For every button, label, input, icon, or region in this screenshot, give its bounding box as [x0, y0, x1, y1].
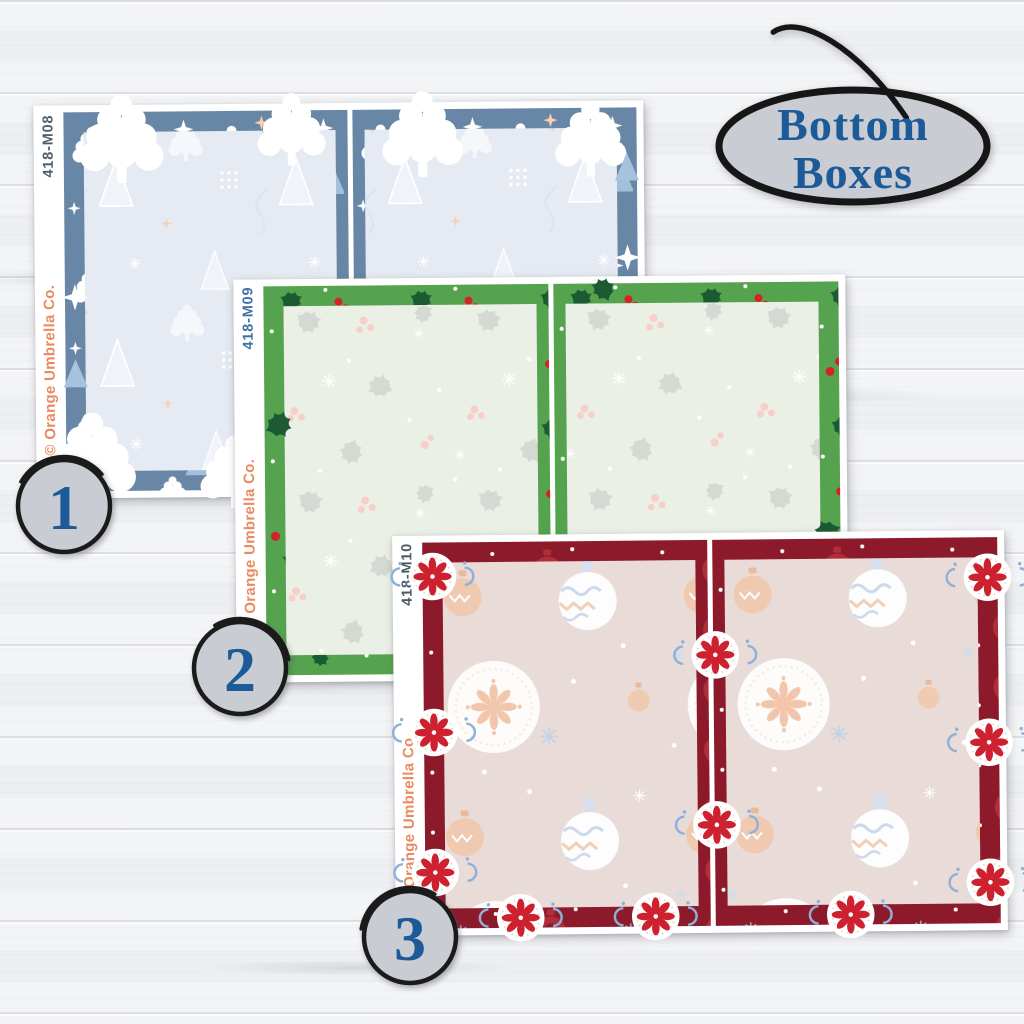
- sheet-3-box-left: [422, 540, 711, 929]
- badge-number-2: 2: [224, 634, 256, 705]
- product-photo-canvas: 418-M08 © Orange Umbrella Co.: [0, 0, 1024, 1024]
- sheet-1-number-badge: 1: [8, 450, 120, 562]
- badge-number-3: 3: [394, 903, 426, 974]
- sheet-1-brand-label: © Orange Umbrella Co.: [41, 285, 59, 456]
- sheet-2-number-badge: 2: [184, 612, 296, 724]
- badge-number-1: 1: [48, 472, 80, 543]
- product-title-badge: Bottom Boxes: [698, 76, 1008, 226]
- sheet-3-box-right: [712, 537, 1001, 926]
- title-badge-line1: Bottom: [777, 99, 929, 150]
- sticker-sheet-3: 418-M10 © Orange Umbrella Co.: [392, 530, 1008, 936]
- title-badge-line2: Boxes: [793, 147, 913, 198]
- sheet-1-product-code: 418-M08: [40, 115, 57, 178]
- sheet-2-brand-label: © Orange Umbrella Co.: [241, 459, 259, 630]
- sheet-2-product-code: 418-M09: [240, 287, 257, 350]
- sheet-3-number-badge: 3: [354, 881, 466, 993]
- sheet-3-boxes: [422, 537, 1001, 929]
